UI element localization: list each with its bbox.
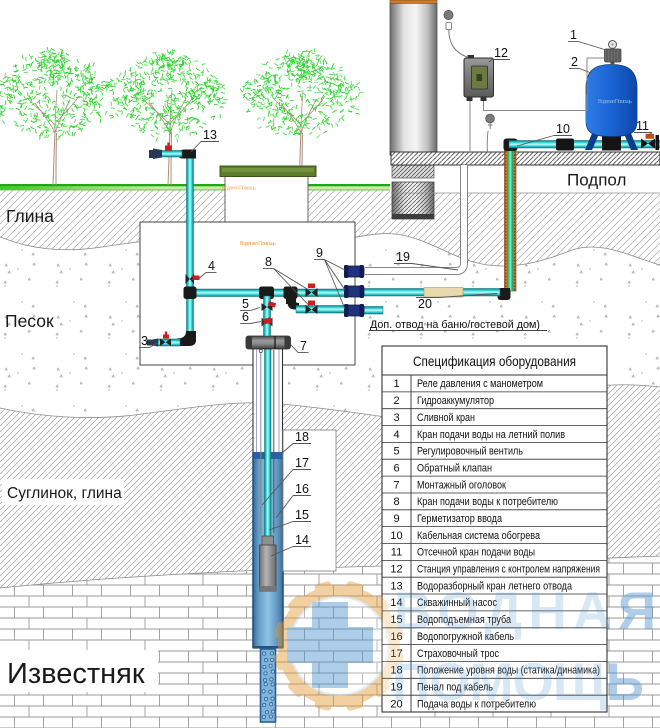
svg-text:Водяная Помощь: Водяная Помощь — [240, 241, 276, 247]
svg-text:7: 7 — [300, 339, 307, 353]
svg-text:4: 4 — [208, 259, 215, 273]
svg-text:2: 2 — [393, 395, 399, 407]
svg-text:1: 1 — [570, 28, 577, 42]
svg-text:11: 11 — [636, 119, 649, 133]
svg-text:15: 15 — [295, 508, 309, 522]
svg-text:ПОМОЩЬ: ПОМОЩЬ — [392, 653, 644, 712]
svg-text:5: 5 — [393, 446, 399, 458]
svg-text:3: 3 — [141, 334, 148, 348]
svg-text:Доп. отвод на баню/гостевой: Доп. отвод на баню/гостевой дом) — [370, 319, 540, 331]
svg-text:9: 9 — [316, 246, 323, 260]
svg-text:4: 4 — [393, 429, 399, 441]
svg-text:Подпол: Подпол — [567, 171, 626, 190]
svg-text:11: 11 — [391, 547, 402, 559]
svg-text:6: 6 — [242, 310, 249, 324]
svg-text:3: 3 — [393, 412, 399, 424]
svg-text:7: 7 — [393, 479, 399, 491]
svg-text:10: 10 — [390, 530, 402, 542]
svg-text:18: 18 — [295, 430, 309, 444]
svg-text:13: 13 — [203, 128, 217, 142]
svg-text:Спецификация оборудования: Спецификация оборудования — [413, 353, 576, 369]
svg-text:20: 20 — [418, 297, 432, 311]
svg-text:Сливной кран: Сливной кран — [417, 412, 475, 424]
svg-text:2: 2 — [571, 55, 578, 69]
svg-text:Регулировочный вентиль: Регулировочный вентиль — [417, 446, 523, 458]
svg-text:Герметизатор ввода: Герметизатор ввода — [417, 513, 502, 525]
svg-text:9: 9 — [393, 513, 399, 525]
svg-text:Песок: Песок — [5, 311, 54, 331]
svg-text:6: 6 — [393, 462, 399, 474]
svg-text:Кран подачи воды к потребителю: Кран подачи воды к потребителю — [417, 496, 558, 508]
svg-text:Станция управления с контролем: Станция управления с контролем напряжени… — [417, 564, 600, 576]
svg-text:14: 14 — [295, 533, 309, 547]
svg-text:Гидроаккумулятор: Гидроаккумулятор — [417, 395, 494, 407]
svg-text:Отсечной кран подачи воды: Отсечной кран подачи воды — [417, 547, 535, 559]
svg-text:Водяная Помощь: Водяная Помощь — [222, 186, 256, 192]
svg-text:Кабельная система обогрева: Кабельная система обогрева — [417, 530, 540, 542]
svg-text:5: 5 — [242, 297, 249, 311]
svg-text:Реле давления с манометром: Реле давления с манометром — [417, 378, 543, 390]
svg-text:8: 8 — [393, 496, 399, 508]
svg-text:8: 8 — [265, 255, 272, 269]
svg-text:17: 17 — [295, 456, 309, 470]
svg-text:Водяная Помощь: Водяная Помощь — [598, 99, 632, 105]
svg-text:19: 19 — [396, 250, 410, 264]
svg-text:16: 16 — [295, 482, 309, 496]
svg-text:1: 1 — [393, 378, 399, 390]
svg-text:10: 10 — [556, 122, 570, 136]
svg-text:Суглинок, глина: Суглинок, глина — [7, 485, 122, 502]
svg-text:Обратный клапан: Обратный клапан — [417, 462, 492, 474]
svg-text:Монтажный оголовок: Монтажный оголовок — [417, 479, 506, 491]
svg-text:Известняк: Известняк — [7, 658, 145, 690]
svg-text:12: 12 — [494, 46, 508, 60]
svg-text:Кран подачи воды на летний пол: Кран подачи воды на летний полив — [417, 429, 565, 441]
svg-text:12: 12 — [390, 564, 402, 576]
svg-text:Глина: Глина — [6, 206, 54, 226]
